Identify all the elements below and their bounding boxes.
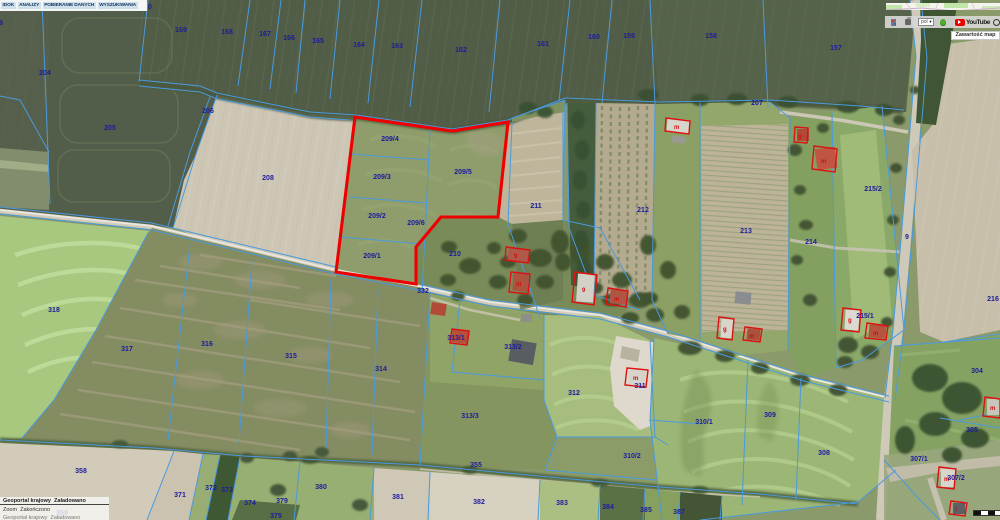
svg-text:m: m	[821, 159, 826, 165]
svg-text:209/6: 209/6	[407, 220, 425, 227]
svg-text:205: 205	[104, 125, 116, 132]
svg-text:g: g	[798, 134, 802, 140]
svg-text:332: 332	[417, 288, 429, 295]
svg-text:g: g	[723, 327, 727, 333]
svg-text:212: 212	[637, 207, 649, 214]
svg-text:308: 308	[818, 450, 830, 457]
svg-text:371: 371	[174, 492, 186, 499]
svg-text:t: t	[955, 507, 957, 513]
svg-text:310/2: 310/2	[623, 453, 641, 460]
svg-text:m: m	[516, 282, 521, 288]
svg-text:210: 210	[449, 251, 461, 258]
svg-text:m: m	[674, 125, 679, 131]
svg-text:312: 312	[568, 390, 580, 397]
svg-text:307/1: 307/1	[910, 456, 928, 463]
svg-text:305: 305	[966, 427, 978, 434]
svg-text:211: 211	[530, 203, 541, 210]
svg-text:168: 168	[221, 29, 233, 36]
svg-text:307/2: 307/2	[947, 475, 965, 482]
svg-text:169: 169	[175, 27, 187, 34]
svg-text:383: 383	[556, 500, 568, 507]
svg-text:209/4: 209/4	[381, 136, 399, 143]
svg-text:309: 309	[764, 412, 776, 419]
svg-text:g: g	[848, 318, 852, 324]
svg-text:372: 372	[205, 485, 217, 492]
svg-text:315: 315	[285, 353, 297, 360]
svg-text:158: 158	[705, 33, 717, 40]
svg-text:160: 160	[588, 34, 600, 41]
svg-text:m: m	[873, 331, 878, 337]
svg-text:374: 374	[244, 500, 256, 507]
svg-text:216: 216	[987, 296, 999, 303]
svg-text:m: m	[614, 297, 619, 303]
svg-text:387: 387	[673, 509, 685, 516]
svg-text:9: 9	[0, 20, 3, 27]
svg-text:311: 311	[634, 383, 645, 390]
svg-text:313/2: 313/2	[504, 344, 522, 351]
svg-text:304: 304	[971, 368, 983, 375]
svg-text:m: m	[990, 406, 995, 412]
svg-text:162: 162	[455, 47, 467, 54]
svg-text:380: 380	[315, 484, 327, 491]
svg-text:375: 375	[270, 513, 282, 520]
svg-text:208: 208	[262, 175, 274, 182]
svg-text:313/1: 313/1	[447, 335, 465, 342]
svg-text:379: 379	[276, 498, 288, 505]
svg-text:m: m	[633, 376, 638, 382]
svg-text:313/3: 313/3	[461, 413, 479, 420]
svg-text:167: 167	[259, 31, 271, 38]
svg-text:159: 159	[623, 33, 635, 40]
svg-text:215/2: 215/2	[864, 186, 882, 193]
svg-text:373: 373	[221, 487, 233, 494]
svg-text:209/5: 209/5	[454, 169, 472, 176]
svg-text:209/3: 209/3	[373, 174, 391, 181]
svg-text:355: 355	[470, 462, 482, 469]
svg-text:215/1: 215/1	[856, 313, 874, 320]
svg-text:381: 381	[392, 494, 404, 501]
svg-text:317: 317	[121, 346, 133, 353]
svg-text:382: 382	[473, 499, 485, 506]
svg-text:310/1: 310/1	[695, 419, 713, 426]
svg-text:358: 358	[75, 468, 87, 475]
svg-text:157: 157	[830, 45, 842, 52]
svg-text:164: 164	[353, 42, 365, 49]
svg-text:314: 314	[375, 366, 387, 373]
svg-text:318: 318	[48, 307, 60, 314]
svg-text:161: 161	[537, 41, 549, 48]
svg-text:214: 214	[805, 239, 817, 246]
svg-text:m: m	[749, 334, 754, 340]
svg-text:209/2: 209/2	[368, 213, 386, 220]
svg-text:213: 213	[740, 228, 752, 235]
svg-text:206: 206	[202, 108, 214, 115]
svg-text:316: 316	[201, 341, 213, 348]
svg-text:165: 165	[312, 38, 324, 45]
svg-text:166: 166	[283, 35, 295, 42]
svg-text:207: 207	[751, 100, 763, 107]
svg-text:209/1: 209/1	[363, 253, 381, 260]
svg-text:385: 385	[640, 507, 652, 514]
svg-text:204: 204	[39, 70, 51, 77]
svg-text:9: 9	[905, 234, 909, 241]
svg-text:384: 384	[602, 504, 614, 511]
svg-text:0: 0	[148, 4, 152, 11]
svg-text:163: 163	[391, 43, 403, 50]
